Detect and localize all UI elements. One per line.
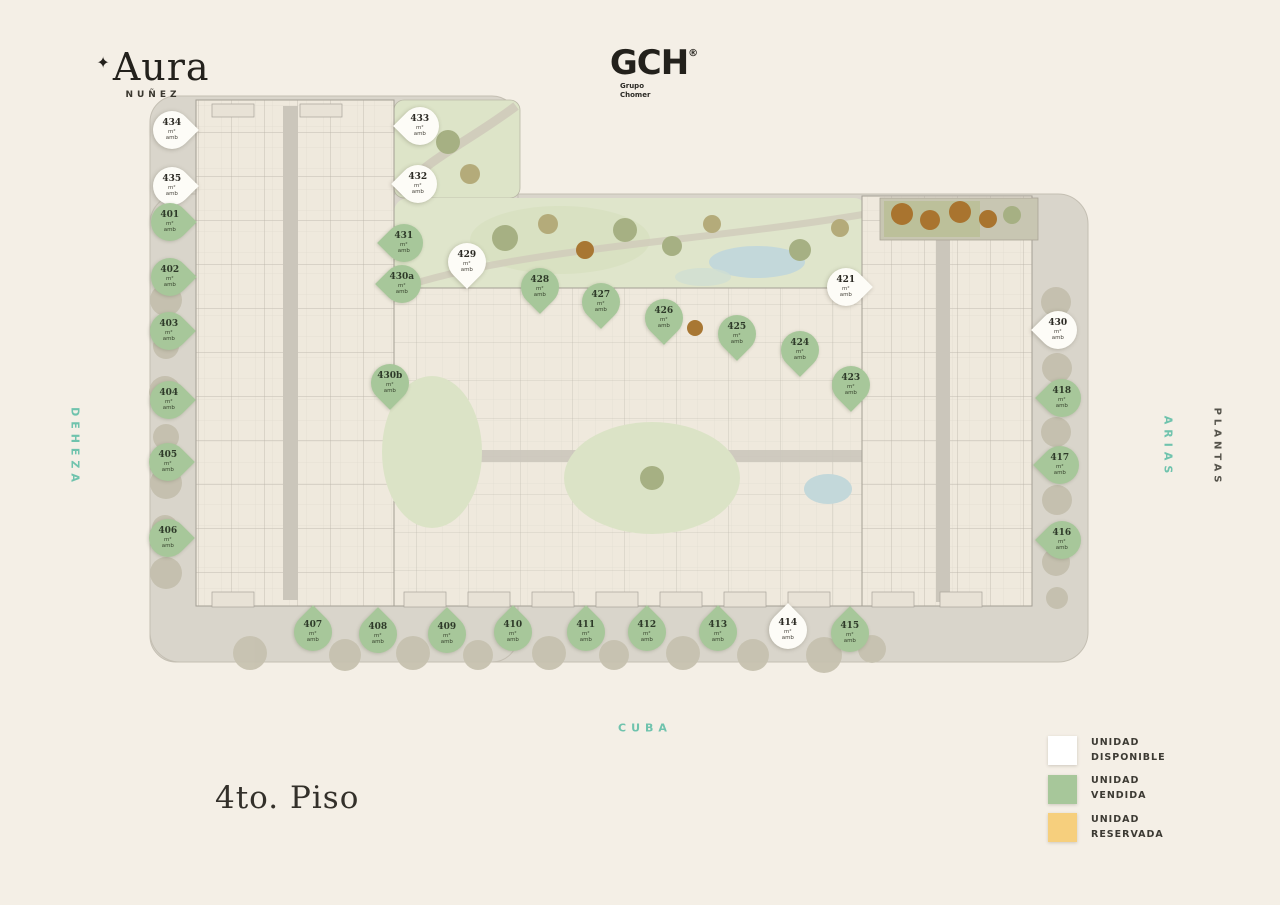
unit-rooms: amb	[771, 635, 805, 641]
unit-area: m²	[771, 629, 805, 635]
unit-rooms: amb	[155, 191, 189, 197]
registered-mark-icon: ®	[688, 48, 698, 59]
unit-pin-body: 402m²amb	[143, 250, 197, 304]
unit-area: m²	[496, 631, 530, 637]
unit-pin-body: 426m²amb	[637, 291, 691, 345]
unit-number: 427	[584, 291, 618, 301]
unit-pin-text: 409m²amb	[430, 623, 464, 646]
unit-number: 435	[155, 175, 189, 185]
unit-area: m²	[152, 330, 186, 336]
unit-rooms: amb	[1043, 470, 1077, 476]
unit-pin-body: 430am²amb	[375, 257, 429, 311]
unit-rooms: amb	[155, 135, 189, 141]
unit-area: m²	[783, 349, 817, 355]
unit-area: m²	[385, 283, 419, 289]
legend-item-reserved: UNIDADRESERVADA	[1048, 813, 1166, 842]
unit-pin-body: 418m²amb	[1035, 371, 1089, 425]
unit-number: 433	[403, 115, 437, 125]
unit-number: 401	[153, 211, 187, 221]
unit-pin-text: 411m²amb	[569, 621, 603, 644]
unit-pin-body: 404m²amb	[142, 373, 196, 427]
unit-pin-text: 406m²amb	[151, 527, 185, 550]
unit-rooms: amb	[151, 543, 185, 549]
unit-number: 405	[151, 451, 185, 461]
unit-rooms: amb	[153, 282, 187, 288]
unit-number: 416	[1045, 529, 1079, 539]
unit-number: 434	[155, 119, 189, 129]
unit-number: 417	[1043, 454, 1077, 464]
unit-pin-text: 416m²amb	[1045, 529, 1079, 552]
unit-area: m²	[373, 382, 407, 388]
unit-pin-body: 434m²amb	[145, 103, 199, 157]
unit-rooms: amb	[1041, 335, 1075, 341]
unit-rooms: amb	[523, 292, 557, 298]
unit-pin-body: 406m²amb	[141, 511, 195, 565]
unit-rooms: amb	[373, 388, 407, 394]
legend-item-sold: UNIDADVENDIDA	[1048, 774, 1166, 803]
unit-rooms: amb	[153, 227, 187, 233]
unit-rooms: amb	[152, 405, 186, 411]
unit-area: m²	[1045, 539, 1079, 545]
unit-rooms: amb	[496, 637, 530, 643]
unit-area: m²	[584, 301, 618, 307]
legend-label-sold: UNIDADVENDIDA	[1091, 774, 1146, 803]
legend-item-available: UNIDADDISPONIBLE	[1048, 736, 1166, 765]
unit-number: 432	[401, 173, 435, 183]
unit-area: m²	[523, 286, 557, 292]
unit-rooms: amb	[833, 638, 867, 644]
unit-pin-body: 431m²amb	[377, 216, 431, 270]
unit-pin-text: 410m²amb	[496, 621, 530, 644]
unit-rooms: amb	[401, 189, 435, 195]
unit-area: m²	[1041, 329, 1075, 335]
unit-rooms: amb	[387, 248, 421, 254]
unit-area: m²	[701, 631, 735, 637]
unit-pin-body: 401m²amb	[143, 195, 197, 249]
developer-wordmark: GCH®	[594, 46, 714, 80]
unit-pin-text: 426m²amb	[647, 307, 681, 330]
unit-area: m²	[403, 125, 437, 131]
unit-area: m²	[569, 631, 603, 637]
brand-wordmark: ✦Aura	[68, 48, 238, 86]
unit-area: m²	[647, 317, 681, 323]
developer-subtitle-line1: Grupo	[620, 82, 714, 91]
unit-pin-text: 427m²amb	[584, 291, 618, 314]
unit-rooms: amb	[834, 390, 868, 396]
unit-area: m²	[829, 286, 863, 292]
unit-pin-body: 421m²amb	[819, 260, 873, 314]
unit-pin-body: 429m²amb	[440, 235, 494, 289]
unit-area: m²	[151, 537, 185, 543]
unit-pin-text: 404m²amb	[152, 389, 186, 412]
legend-label-reserved: UNIDADRESERVADA	[1091, 813, 1164, 842]
unit-area: m²	[720, 333, 754, 339]
unit-pin-body: 410m²amb	[486, 605, 540, 659]
unit-pin-body: 413m²amb	[691, 605, 745, 659]
unit-pin-text: 414m²amb	[771, 619, 805, 642]
brand-name: Aura	[113, 45, 210, 89]
unit-pin-body: 425m²amb	[710, 307, 764, 361]
unit-number: 430	[1041, 319, 1075, 329]
unit-pin-text: 433m²amb	[403, 115, 437, 138]
unit-number: 402	[153, 266, 187, 276]
developer-subtitle-line2: Chomer	[620, 91, 714, 100]
unit-area: m²	[834, 384, 868, 390]
unit-pin-body: 430bm²amb	[363, 356, 417, 410]
unit-rooms: amb	[151, 467, 185, 473]
unit-rooms: amb	[430, 639, 464, 645]
unit-rooms: amb	[569, 637, 603, 643]
unit-rooms: amb	[783, 355, 817, 361]
unit-number: 415	[833, 622, 867, 632]
unit-number: 430a	[385, 273, 419, 283]
unit-pin-text: 405m²amb	[151, 451, 185, 474]
page-background: 434m²amb435m²amb401m²amb402m²amb403m²amb…	[0, 0, 1280, 905]
unit-pin-body: 417m²amb	[1033, 438, 1087, 492]
unit-number: 426	[647, 307, 681, 317]
unit-number: 403	[152, 320, 186, 330]
street-label-deheza: DEHEZA	[69, 407, 82, 487]
unit-rooms: amb	[720, 339, 754, 345]
unit-area: m²	[296, 631, 330, 637]
unit-pin-body: 409m²amb	[420, 607, 474, 661]
brand-logo: ✦Aura NUÑEZ	[68, 48, 238, 100]
unit-pin-body: 403m²amb	[142, 304, 196, 358]
unit-pin-body: 411m²amb	[559, 605, 613, 659]
unit-pin-text: 428m²amb	[523, 276, 557, 299]
unit-pin-text: 432m²amb	[401, 173, 435, 196]
unit-pin-body: 408m²amb	[351, 607, 405, 661]
unit-area: m²	[450, 261, 484, 267]
unit-pin-text: 408m²amb	[361, 623, 395, 646]
unit-rooms: amb	[296, 637, 330, 643]
unit-number: 424	[783, 339, 817, 349]
legend-label-available: UNIDADDISPONIBLE	[1091, 736, 1166, 765]
unit-number: 404	[152, 389, 186, 399]
legend-swatch-reserved	[1048, 813, 1077, 842]
unit-rooms: amb	[701, 637, 735, 643]
unit-number: 428	[523, 276, 557, 286]
street-label-arias: ARIAS	[1162, 416, 1175, 479]
unit-number: 414	[771, 619, 805, 629]
unit-number: 430b	[373, 372, 407, 382]
unit-number: 407	[296, 621, 330, 631]
unit-area: m²	[833, 632, 867, 638]
unit-number: 423	[834, 374, 868, 384]
unit-rooms: amb	[647, 323, 681, 329]
street-label-cuba: CUBA	[618, 722, 672, 735]
unit-rooms: amb	[152, 336, 186, 342]
unit-rooms: amb	[1045, 403, 1079, 409]
unit-pin-body: 414m²amb	[761, 603, 815, 657]
unit-pin-text: 435m²amb	[155, 175, 189, 198]
unit-pin-text: 407m²amb	[296, 621, 330, 644]
unit-pin-body: 412m²amb	[620, 605, 674, 659]
unit-pin-text: 429m²amb	[450, 251, 484, 274]
unit-area: m²	[630, 631, 664, 637]
unit-area: m²	[153, 221, 187, 227]
unit-number: 413	[701, 621, 735, 631]
brand-subtitle: NUÑEZ	[68, 90, 238, 100]
legend: UNIDADDISPONIBLEUNIDADVENDIDAUNIDADRESER…	[1048, 736, 1166, 842]
unit-number: 412	[630, 621, 664, 631]
unit-number: 431	[387, 232, 421, 242]
unit-number: 408	[361, 623, 395, 633]
unit-number: 411	[569, 621, 603, 631]
unit-number: 421	[829, 276, 863, 286]
unit-area: m²	[155, 129, 189, 135]
unit-pin-text: 402m²amb	[153, 266, 187, 289]
unit-pin-body: 415m²amb	[823, 606, 877, 660]
unit-area: m²	[153, 276, 187, 282]
unit-area: m²	[387, 242, 421, 248]
legend-swatch-sold	[1048, 775, 1077, 804]
unit-pin-body: 407m²amb	[286, 605, 340, 659]
unit-pin-text: 417m²amb	[1043, 454, 1077, 477]
unit-pin-text: 425m²amb	[720, 323, 754, 346]
unit-pin-body: 432m²amb	[391, 157, 445, 211]
unit-pin-text: 403m²amb	[152, 320, 186, 343]
unit-pin-text: 430bm²amb	[373, 372, 407, 395]
street-label-plantas: PLANTAS	[1212, 408, 1223, 487]
unit-pin-text: 418m²amb	[1045, 387, 1079, 410]
developer-name: GCH	[610, 43, 688, 83]
developer-subtitle: Grupo Chomer	[620, 82, 714, 100]
unit-area: m²	[430, 633, 464, 639]
unit-pin-text: 421m²amb	[829, 276, 863, 299]
unit-number: 429	[450, 251, 484, 261]
unit-pin-text: 413m²amb	[701, 621, 735, 644]
unit-area: m²	[1045, 397, 1079, 403]
unit-pin-text: 415m²amb	[833, 622, 867, 645]
unit-number: 410	[496, 621, 530, 631]
unit-pin-text: 401m²amb	[153, 211, 187, 234]
unit-area: m²	[152, 399, 186, 405]
star-icon: ✦	[96, 53, 110, 72]
unit-pin-body: 427m²amb	[574, 275, 628, 329]
unit-pin-body: 423m²amb	[824, 358, 878, 412]
unit-rooms: amb	[1045, 545, 1079, 551]
unit-pin-text: 431m²amb	[387, 232, 421, 255]
legend-swatch-available	[1048, 736, 1077, 765]
unit-number: 418	[1045, 387, 1079, 397]
developer-logo: GCH® Grupo Chomer	[594, 46, 714, 100]
unit-area: m²	[401, 183, 435, 189]
unit-number: 406	[151, 527, 185, 537]
unit-area: m²	[361, 633, 395, 639]
unit-pin-body: 416m²amb	[1035, 513, 1089, 567]
unit-pin-text: 412m²amb	[630, 621, 664, 644]
floor-title: 4to. Piso	[215, 780, 359, 816]
unit-pin-body: 424m²amb	[773, 323, 827, 377]
unit-area: m²	[151, 461, 185, 467]
unit-pin-text: 430m²amb	[1041, 319, 1075, 342]
unit-number: 409	[430, 623, 464, 633]
unit-pin-text: 430am²amb	[385, 273, 419, 296]
unit-rooms: amb	[584, 307, 618, 313]
unit-pin-body: 430m²amb	[1031, 303, 1085, 357]
unit-rooms: amb	[630, 637, 664, 643]
unit-pin-text: 434m²amb	[155, 119, 189, 142]
unit-pin-text: 424m²amb	[783, 339, 817, 362]
unit-pin-body: 433m²amb	[393, 99, 447, 153]
unit-rooms: amb	[829, 292, 863, 298]
unit-pin-body: 405m²amb	[141, 435, 195, 489]
unit-rooms: amb	[403, 131, 437, 137]
unit-rooms: amb	[385, 289, 419, 295]
unit-rooms: amb	[361, 639, 395, 645]
unit-rooms: amb	[450, 267, 484, 273]
unit-number: 425	[720, 323, 754, 333]
unit-area: m²	[155, 185, 189, 191]
unit-pin-text: 423m²amb	[834, 374, 868, 397]
unit-area: m²	[1043, 464, 1077, 470]
unit-pin-body: 428m²amb	[513, 260, 567, 314]
